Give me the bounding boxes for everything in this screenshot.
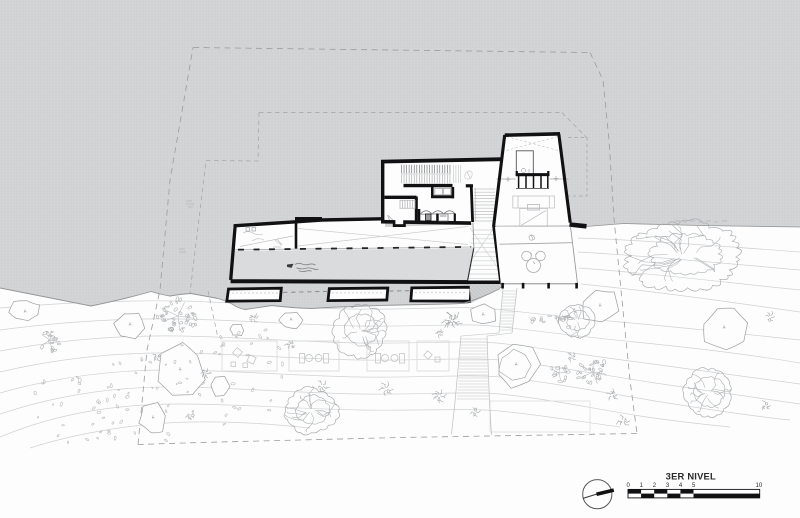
svg-text:3ER NIVEL: 3ER NIVEL bbox=[666, 470, 716, 481]
svg-text:10: 10 bbox=[756, 483, 763, 489]
